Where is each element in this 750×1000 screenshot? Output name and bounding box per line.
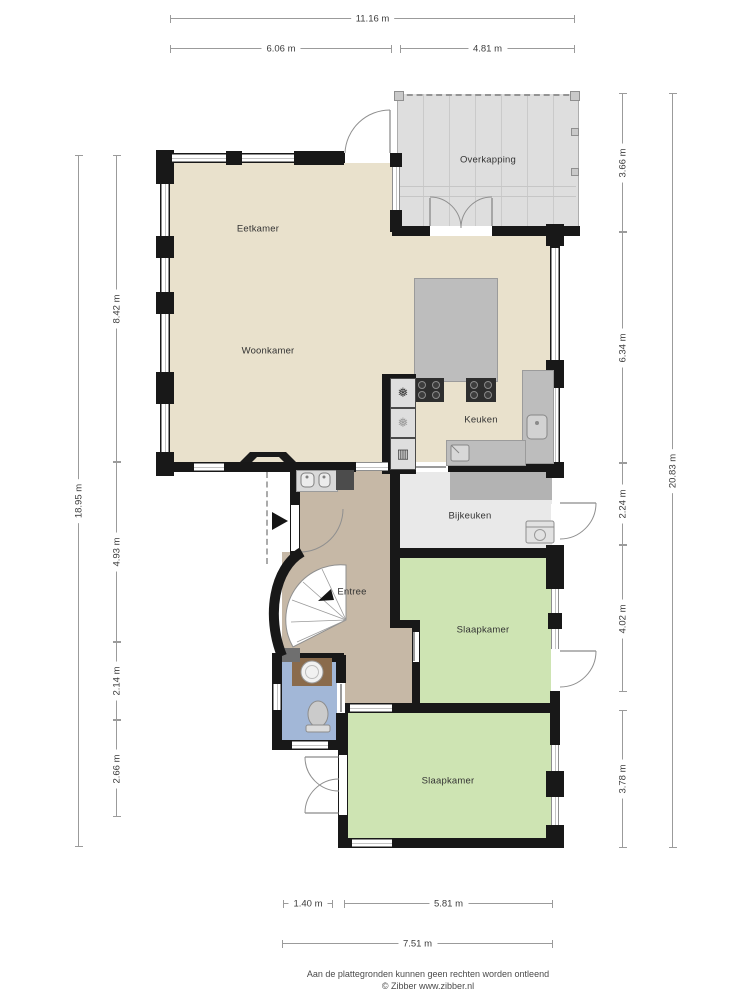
door-opening (339, 755, 347, 815)
window (551, 629, 559, 649)
wall-pier (294, 151, 344, 165)
dimension-right-seg1: 6.34 m (622, 232, 623, 463)
window (161, 184, 169, 236)
window (551, 248, 559, 360)
room-label-slaapkamer-1: Slaapkamer (457, 625, 510, 636)
wall (390, 548, 560, 558)
dimension-left-seg2: 2.14 m (116, 642, 117, 720)
door-opening (414, 462, 448, 472)
overkapping-deck-line (398, 186, 576, 187)
dimension-value: 3.66 m (618, 143, 629, 182)
wall-pier (156, 236, 174, 258)
dimension-left-seg1: 4.93 m (116, 462, 117, 642)
dimension-value: 1.40 m (288, 899, 327, 910)
overkapping-post (571, 128, 579, 136)
dimension-value: 18.95 m (74, 479, 85, 523)
oven-icon: ▥ (390, 438, 416, 470)
window (551, 797, 559, 825)
dimension-left-total: 18.95 m (78, 155, 79, 847)
room-label-overkapping: Overkapping (460, 155, 516, 166)
room-eetkamer-woonkamer-floor (168, 160, 394, 470)
room-label-bijkeuken: Bijkeuken (449, 511, 492, 522)
dimension-value: 8.42 m (112, 289, 123, 328)
wall-pier (156, 372, 174, 404)
dimension-value: 4.93 m (112, 532, 123, 571)
dimension-bottom-right: 5.81 m (344, 903, 553, 904)
wall-pier (156, 452, 174, 476)
window (551, 745, 559, 771)
dimension-value: 7.51 m (398, 939, 437, 950)
room-label-eetkamer: Eetkamer (237, 224, 279, 235)
window (292, 741, 328, 749)
door-opening (551, 649, 559, 691)
window (194, 463, 224, 471)
window (172, 154, 226, 162)
window (392, 167, 400, 210)
wall-pier (546, 825, 564, 848)
copyright-text: © Zibber www.zibber.nl (128, 981, 728, 991)
dimension-bottom-total: 7.51 m (282, 943, 553, 944)
dimension-value: 11.16 m (351, 14, 395, 25)
bijkeuken-counter (450, 472, 552, 500)
wall-pier (546, 545, 564, 589)
kitchen-island (414, 278, 498, 382)
dimension-value: 4.02 m (618, 599, 629, 638)
canopy-dashed-line (266, 472, 268, 564)
door-opening (551, 504, 559, 540)
window (242, 154, 294, 162)
disclaimer-text: Aan de plattegronden kunnen geen rechten… (128, 969, 728, 979)
dimension-value: 20.83 m (668, 448, 679, 492)
fridge-glyph: ❅ (398, 415, 409, 431)
dimension-value: 6.34 m (618, 328, 629, 367)
door-opening (337, 683, 345, 713)
window (273, 684, 281, 710)
overkapping-post (570, 91, 580, 101)
freezer-glyph: ❅ (398, 385, 409, 401)
dimension-right-seg2: 2.24 m (622, 463, 623, 545)
room-label-slaapkamer-2: Slaapkamer (422, 776, 475, 787)
toilet-vanity (292, 658, 332, 686)
door-opening (345, 153, 390, 163)
entrance-arrow (272, 512, 288, 530)
wall (550, 703, 560, 745)
oven-glyph: ▥ (397, 446, 409, 462)
kitchen-counter-right (522, 370, 554, 464)
room-entree-floor (340, 625, 420, 710)
window (161, 314, 169, 372)
hall-counter (296, 470, 338, 492)
dimension-value: 2.14 m (112, 661, 123, 700)
overkapping-post (571, 168, 579, 176)
dimension-value: 2.66 m (112, 749, 123, 788)
dimension-value: 2.24 m (618, 484, 629, 523)
dimension-value: 6.06 m (261, 44, 300, 55)
wall-pier (546, 224, 564, 246)
cooktop-panel (414, 378, 444, 402)
room-label-keuken: Keuken (464, 415, 497, 426)
dimension-right-seg3: 4.02 m (622, 545, 623, 692)
window (551, 589, 559, 613)
door-opening (430, 226, 492, 236)
dimension-bottom-left: 1.40 m (283, 903, 333, 904)
dimension-right-total: 20.83 m (672, 93, 673, 848)
window (350, 704, 392, 712)
dimension-right-seg0: 3.66 m (622, 93, 623, 232)
wall (390, 153, 402, 167)
wall (390, 462, 400, 556)
window (161, 258, 169, 292)
wall-pier (548, 613, 562, 629)
hall-stove (336, 470, 354, 490)
wall (336, 655, 346, 683)
wall-pier (546, 771, 564, 797)
dimension-top-total: 11.16 m (170, 18, 575, 19)
fridge-icon: ❅ (390, 408, 416, 438)
wall-pier (226, 151, 242, 165)
window (161, 404, 169, 452)
wall (390, 548, 400, 628)
wall-pier (156, 292, 174, 314)
dimension-left-seg3: 2.66 m (116, 720, 117, 817)
stair-closet (282, 648, 300, 662)
cooktop-panel (466, 378, 496, 402)
wall-pier (546, 462, 564, 478)
overkapping-post (394, 91, 404, 101)
dimension-left-seg0: 8.42 m (116, 155, 117, 462)
room-label-woonkamer: Woonkamer (242, 346, 295, 357)
dimension-value: 3.78 m (618, 759, 629, 798)
room-label-entree: Entree (337, 587, 366, 598)
freezer-icon: ❅ (390, 378, 416, 408)
floorplan-canvas: ❅ ❅ ▥ (0, 0, 750, 1000)
dimension-value: 4.81 m (468, 44, 507, 55)
door-opening (413, 632, 419, 662)
dimension-top-right: 4.81 m (400, 48, 575, 49)
window (352, 839, 392, 847)
door-opening (291, 505, 299, 551)
dimension-value: 5.81 m (429, 899, 468, 910)
overkapping-deck-line (398, 196, 576, 197)
dimension-right-seg4: 3.78 m (622, 710, 623, 848)
dimension-top-left: 6.06 m (170, 48, 392, 49)
kitchen-counter-bottom (446, 440, 526, 466)
